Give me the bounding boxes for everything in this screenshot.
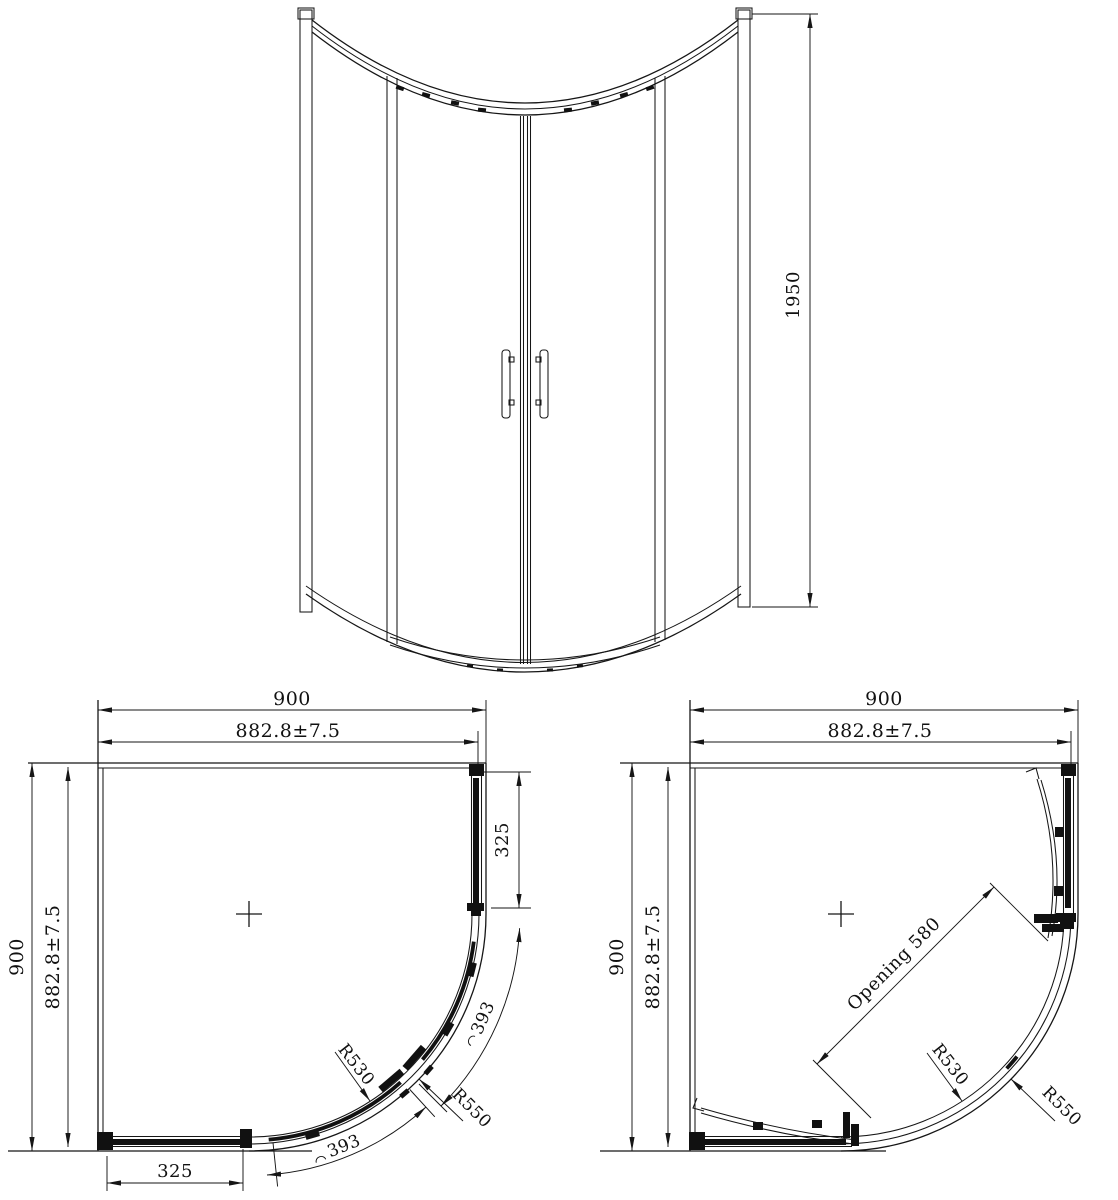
dim-plan2-door-opening: Opening 580 (813, 883, 1048, 1118)
plan1-adjustment-width-label: 882.8±7.5 (235, 720, 340, 742)
plan1-walls (8, 700, 486, 1151)
plan-view-doors-open: 900 882.8±7.5 900 882.8±7.5 Opening 580 … (600, 688, 1085, 1151)
plan2-radius-outer-label: R550 (1038, 1083, 1086, 1131)
dim-plan1-side-panel: 325 (481, 772, 531, 908)
dim-plan1-adjustment-width: 882.8±7.5 (98, 720, 478, 765)
plan2-track-arcs (841, 914, 1071, 1144)
plan2-overall-depth-label: 900 (606, 938, 628, 976)
dim-plan2-radius-outer: R550 (1011, 1079, 1085, 1130)
plan1-side-panel-label: 325 (492, 822, 513, 858)
plan1-radius-inner-label: R530 (334, 1040, 379, 1090)
right-wall-profile (736, 8, 752, 607)
left-wall-profile (298, 8, 314, 612)
drawing-sheet: 1950 (0, 0, 1118, 1200)
plan2-door-opening-label: Opening 580 (843, 913, 945, 1015)
plan1-front-fixed-panel (97, 1129, 252, 1150)
dim-plan1-front-panel: 325 (107, 1149, 243, 1191)
door-handle-right (536, 350, 548, 418)
plan2-radius-inner-label: R530 (928, 1040, 973, 1090)
elevation-view: 1950 (298, 8, 818, 672)
plan1-center-mark (236, 901, 262, 927)
plan1-radius-outer-label: R550 (448, 1085, 496, 1133)
elevation-height-label: 1950 (783, 271, 804, 319)
plan2-adjustment-width-label: 882.8±7.5 (827, 720, 932, 742)
plan1-door-arc-upper-label: 393 (467, 998, 499, 1037)
dim-plan1-radius-outer: R550 (419, 1079, 495, 1132)
dim-plan2-adjustment-width: 882.8±7.5 (690, 720, 1071, 765)
plan2-walls (600, 700, 1078, 1151)
dim-plan1-door-arc-upper: 393 (419, 928, 520, 1112)
roller-brackets-top (396, 85, 655, 113)
plan-view-doors-closed: 900 882.8±7.5 900 882.8±7.5 325 325 (6, 688, 531, 1191)
dim-plan1-overall-depth: 900 (6, 763, 32, 1151)
plan1-door-arc-lower-label: 393 (325, 1131, 364, 1162)
dim-plan2-radius-inner: R530 (927, 1040, 972, 1101)
shower-enclosure-drawing: 1950 (0, 0, 1118, 1200)
dim-plan1-adjustment-depth: 882.8±7.5 (42, 767, 68, 1147)
plan1-overall-depth-label: 900 (6, 938, 28, 976)
plan1-front-panel-label: 325 (157, 1161, 193, 1182)
dim-plan2-adjustment-depth: 882.8±7.5 (642, 767, 668, 1147)
plan2-parked-door-right (1026, 768, 1064, 938)
glass-mullions (387, 76, 665, 664)
top-rail (312, 20, 738, 115)
door-handle-left (502, 350, 514, 418)
plan2-center-mark (828, 901, 854, 927)
plan2-overall-width-label: 900 (865, 688, 903, 710)
dim-plan1-radius-inner: R530 (334, 1040, 379, 1101)
dim-plan2-overall-depth: 900 (606, 763, 632, 1151)
plan1-adjustment-depth-label: 882.8±7.5 (42, 904, 64, 1009)
plan2-side-fixed-panel (1056, 764, 1076, 929)
dim-elevation-height: 1950 (752, 14, 818, 607)
plan1-overall-width-label: 900 (273, 688, 311, 710)
plan1-side-fixed-panel (467, 764, 484, 916)
plan2-adjustment-depth-label: 882.8±7.5 (642, 904, 664, 1009)
plan2-parked-door-bottom (693, 1098, 859, 1146)
